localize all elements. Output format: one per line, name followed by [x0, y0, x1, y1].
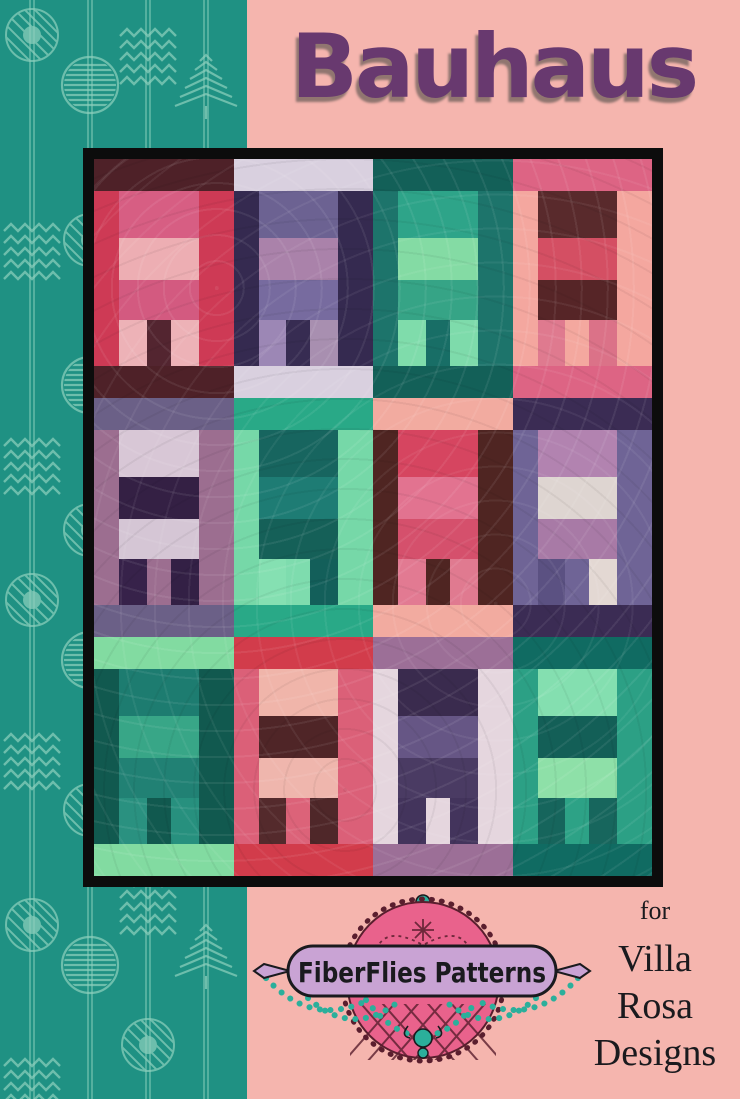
ladder-band: [119, 519, 199, 559]
block-top-strip: [234, 398, 374, 430]
ladder-legs: [119, 320, 199, 365]
ladder-band: [119, 716, 199, 758]
publisher-attribution: for Villa Rosa Designs: [575, 896, 735, 1077]
ladder-leg-right: [589, 559, 617, 604]
ladder-band: [119, 669, 199, 716]
block-bottom-strip: [513, 605, 653, 637]
block-field: [234, 669, 374, 844]
striped-circle-motif: [62, 57, 118, 113]
ladder-legs: [259, 798, 339, 843]
ladder-band: [259, 191, 339, 238]
ladder-band: [259, 238, 339, 280]
quilt-block: [513, 637, 653, 876]
ladder-leg-left: [259, 320, 287, 365]
ladder-leg-right: [310, 798, 338, 843]
block-ladder: [398, 669, 478, 844]
ladder-band: [538, 758, 618, 798]
block-ladder: [259, 430, 339, 605]
block-field: [94, 669, 234, 844]
block-bottom-strip: [373, 605, 513, 637]
block-ladder: [538, 430, 618, 605]
ladder-legs: [119, 798, 199, 843]
ladder-band: [398, 280, 478, 320]
ladder-band: [119, 238, 199, 280]
ladder-leg-right: [450, 559, 478, 604]
block-bottom-strip: [373, 844, 513, 876]
block-top-strip: [373, 159, 513, 191]
ladder-legs: [398, 559, 478, 604]
attribution-for: for: [575, 896, 735, 926]
attribution-line: Villa: [575, 936, 735, 983]
brand-name: FiberFlies Patterns: [298, 956, 546, 989]
ladder-band: [259, 519, 339, 559]
block-field: [373, 430, 513, 605]
quilt-block: [94, 398, 234, 637]
block-ladder: [538, 669, 618, 844]
pattern-title: Bauhaus: [247, 16, 740, 117]
ladder-band: [538, 430, 618, 477]
ladder-gap: [426, 320, 450, 365]
ladder-legs: [119, 559, 199, 604]
block-top-strip: [513, 159, 653, 191]
block-top-strip: [94, 637, 234, 669]
ladder-band: [538, 191, 618, 238]
block-field: [234, 430, 374, 605]
ladder-legs: [259, 320, 339, 365]
banner-spindle-left: [254, 964, 290, 978]
ladder-leg-left: [398, 320, 426, 365]
ladder-leg-left: [259, 559, 287, 604]
ladder-legs: [398, 798, 478, 843]
ladder-leg-left: [398, 798, 426, 843]
ladder-band: [538, 477, 618, 519]
quilt-block: [94, 637, 234, 876]
ladder-band: [119, 430, 199, 477]
ladder-leg-right: [450, 798, 478, 843]
ladder-band: [398, 669, 478, 716]
block-top-strip: [234, 159, 374, 191]
ladder-leg-right: [171, 559, 199, 604]
ladder-band: [398, 758, 478, 798]
quilt-block: [234, 159, 374, 398]
block-bottom-strip: [94, 366, 234, 398]
block-bottom-strip: [94, 605, 234, 637]
ladder-leg-right: [589, 320, 617, 365]
ladder-gap: [565, 798, 589, 843]
ladder-band: [398, 477, 478, 519]
block-field: [94, 191, 234, 366]
ladder-band: [259, 669, 339, 716]
striped-circle-motif: [62, 937, 118, 993]
block-bottom-strip: [234, 844, 374, 876]
block-bottom-strip: [513, 844, 653, 876]
ladder-legs: [538, 798, 618, 843]
block-ladder: [119, 430, 199, 605]
ladder-gap: [426, 798, 450, 843]
ladder-band: [119, 191, 199, 238]
ladder-band: [119, 758, 199, 798]
block-field: [234, 191, 374, 366]
ladder-leg-left: [259, 798, 287, 843]
ladder-gap: [147, 320, 171, 365]
logo-bottom-bead: [414, 1029, 432, 1047]
ladder-band: [259, 280, 339, 320]
fiberflies-logo-badge: FiberFlies Patterns: [250, 886, 594, 1086]
ladder-leg-left: [119, 320, 147, 365]
block-bottom-strip: [373, 366, 513, 398]
block-ladder: [119, 669, 199, 844]
ladder-gap: [147, 559, 171, 604]
block-ladder: [398, 191, 478, 366]
ladder-band: [538, 238, 618, 280]
ladder-band: [538, 280, 618, 320]
block-bottom-strip: [94, 844, 234, 876]
block-field: [513, 191, 653, 366]
ladder-leg-right: [450, 320, 478, 365]
quilt-photo: [83, 148, 663, 887]
ladder-leg-right: [589, 798, 617, 843]
quilt-block: [373, 637, 513, 876]
ladder-band: [398, 191, 478, 238]
ladder-band: [119, 477, 199, 519]
ladder-band: [398, 716, 478, 758]
ladder-band: [538, 519, 618, 559]
quilt-block: [513, 159, 653, 398]
ladder-leg-right: [171, 798, 199, 843]
ladder-leg-left: [119, 798, 147, 843]
block-top-strip: [94, 398, 234, 430]
ladder-band: [538, 716, 618, 758]
fiberflies-logo-graphic: FiberFlies Patterns: [250, 886, 594, 1086]
block-top-strip: [373, 398, 513, 430]
quilt-block: [94, 159, 234, 398]
block-bottom-strip: [234, 605, 374, 637]
attribution-line: Rosa: [575, 983, 735, 1030]
ladder-legs: [398, 320, 478, 365]
quilt-block: [234, 398, 374, 637]
block-bottom-strip: [234, 366, 374, 398]
ladder-band: [259, 758, 339, 798]
ladder-leg-left: [538, 559, 566, 604]
ladder-leg-left: [398, 559, 426, 604]
ladder-band: [398, 430, 478, 477]
ladder-leg-right: [310, 559, 338, 604]
quilt-grid: [94, 159, 652, 876]
ladder-leg-left: [119, 559, 147, 604]
block-field: [373, 191, 513, 366]
quilt-block: [513, 398, 653, 637]
ladder-leg-left: [538, 798, 566, 843]
ladder-legs: [259, 559, 339, 604]
ladder-band: [398, 519, 478, 559]
block-top-strip: [234, 637, 374, 669]
ladder-legs: [538, 320, 618, 365]
block-top-strip: [373, 637, 513, 669]
ladder-band: [259, 716, 339, 758]
quilt-block: [373, 398, 513, 637]
block-ladder: [398, 430, 478, 605]
ladder-band: [538, 669, 618, 716]
block-bottom-strip: [513, 366, 653, 398]
ladder-gap: [286, 559, 310, 604]
ladder-leg-left: [538, 320, 566, 365]
block-ladder: [119, 191, 199, 366]
block-ladder: [538, 191, 618, 366]
block-top-strip: [513, 637, 653, 669]
block-field: [513, 430, 653, 605]
block-field: [373, 669, 513, 844]
block-top-strip: [94, 159, 234, 191]
ladder-gap: [426, 559, 450, 604]
ladder-band: [259, 430, 339, 477]
ladder-gap: [286, 320, 310, 365]
block-field: [513, 669, 653, 844]
block-top-strip: [513, 398, 653, 430]
quilt-block: [373, 159, 513, 398]
ladder-gap: [286, 798, 310, 843]
quilt-block: [234, 637, 374, 876]
ladder-gap: [565, 320, 589, 365]
ladder-leg-right: [171, 320, 199, 365]
ladder-leg-right: [310, 320, 338, 365]
block-ladder: [259, 191, 339, 366]
ladder-band: [259, 477, 339, 519]
ladder-gap: [147, 798, 171, 843]
ladder-legs: [538, 559, 618, 604]
ladder-gap: [565, 559, 589, 604]
block-field: [94, 430, 234, 605]
ladder-band: [398, 238, 478, 280]
block-ladder: [259, 669, 339, 844]
ladder-band: [119, 280, 199, 320]
attribution-line: Designs: [575, 1030, 735, 1077]
